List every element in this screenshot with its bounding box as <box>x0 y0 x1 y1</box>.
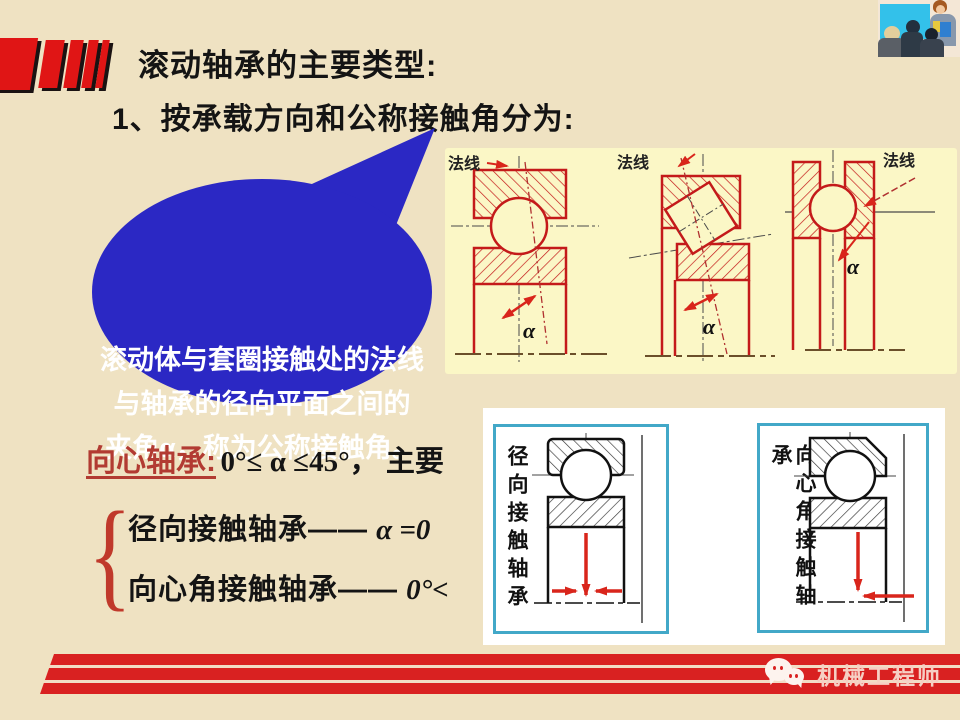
definition-line-2: 与轴承的径向平面之间的 <box>72 382 452 426</box>
branch-angular-contact: 向心角接触轴承—— 0°< <box>128 566 449 608</box>
radial-contact-bearing-frame: 径向接触轴承 <box>493 424 669 634</box>
brace-glyph: { <box>88 494 132 616</box>
red-stripes-decoration <box>0 38 115 94</box>
classroom-clipart <box>878 0 960 57</box>
branch-radial-contact: 径向接触轴承—— α =0 <box>128 506 430 548</box>
radial-contact-bearing-diagram <box>530 431 662 629</box>
branch1-value: α =0 <box>376 514 430 546</box>
slide: 滚动轴承的主要类型: 1、按承载方向和公称接触角分为: 法线 α <box>0 0 960 720</box>
red-bar <box>38 40 65 88</box>
speech-bubble-shape <box>50 125 450 415</box>
contact-angle-figure-panel: 法线 α 法线 α <box>445 148 957 374</box>
angular-contact-bearing-diagram <box>792 430 922 628</box>
brand-name: 机械工程师 <box>817 657 942 691</box>
radial-contact-bearing-label: 径向接触轴承 <box>504 445 528 613</box>
page-title: 滚动轴承的主要类型: <box>138 40 437 85</box>
wechat-logo-icon <box>765 658 811 690</box>
bearing-diagram-angular: 法线 α <box>615 148 781 370</box>
book-shape <box>940 22 951 37</box>
bearing-diagram-thrust: 法线 α <box>785 148 955 370</box>
subtitle-classification: 1、按承载方向和公称接触角分为: <box>112 94 575 138</box>
radial-bearing-definition: 向心轴承: 0°≤ α ≤45°， 主要 <box>86 436 444 480</box>
contact-angle-range: 0°≤ α ≤45°， 主要 <box>220 446 443 478</box>
angular-contact-bearing-frame: 向心角接触轴承 <box>757 423 929 633</box>
red-bar <box>63 40 84 88</box>
footer-stripe-bar: 机械工程师 <box>40 654 960 694</box>
branch1-name: 径向接触轴承—— <box>128 514 368 546</box>
brand-block: 机械工程师 <box>765 659 942 689</box>
normal-line-label: 法线 <box>617 153 649 172</box>
radial-bearing-term: 向心轴承: <box>86 445 216 478</box>
bearing-diagram-radial: 法线 α <box>447 148 617 368</box>
alpha-label: α <box>523 318 536 343</box>
alpha-label: α <box>703 314 716 339</box>
normal-line-label: 法线 <box>448 154 480 173</box>
alpha-label: α <box>847 254 860 279</box>
red-bar <box>0 38 38 90</box>
branch2-name: 向心角接触轴承—— <box>128 574 398 606</box>
branch2-value: 0°< <box>406 574 449 606</box>
definition-line-1: 滚动体与套圈接触处的法线 <box>72 338 452 382</box>
bearing-examples-panel: 径向接触轴承 向心角接触轴承 <box>483 408 945 645</box>
speech-bubble-small <box>784 668 804 685</box>
student-body <box>920 39 944 57</box>
teacher-face <box>936 5 945 14</box>
normal-line-label: 法线 <box>883 151 915 170</box>
